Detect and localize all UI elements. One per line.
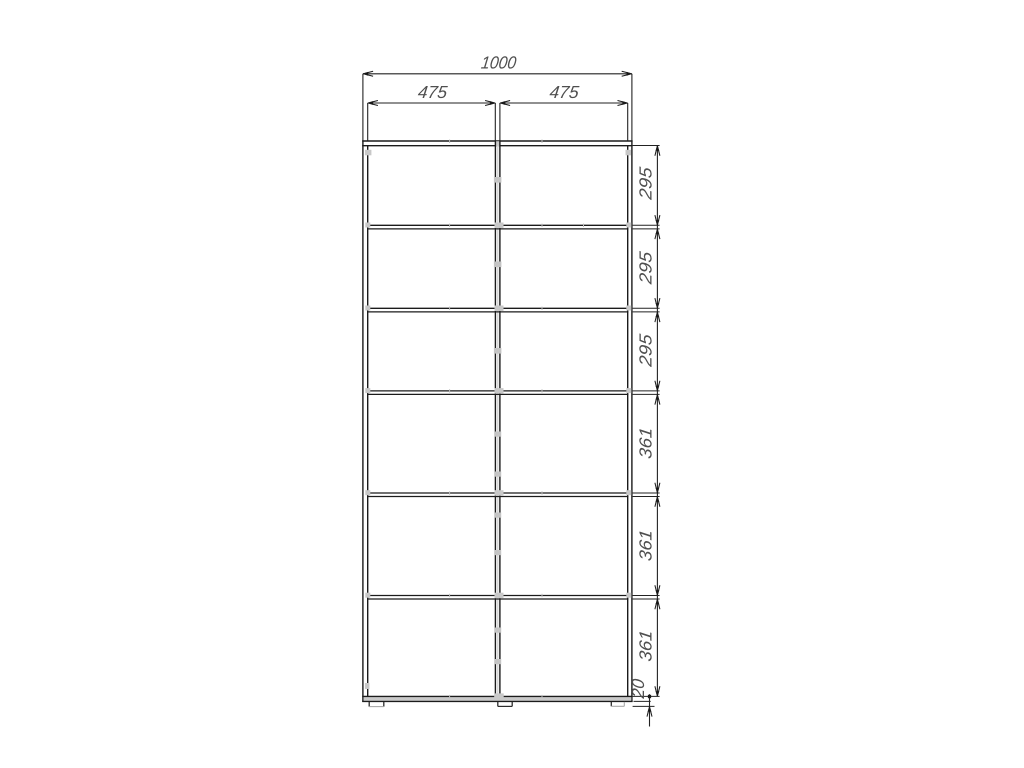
svg-text:20: 20 — [628, 678, 648, 701]
svg-text:361: 361 — [635, 529, 655, 562]
svg-text:475: 475 — [417, 82, 449, 102]
svg-text:295: 295 — [635, 166, 655, 202]
svg-text:361: 361 — [635, 426, 655, 459]
svg-text:295: 295 — [635, 250, 655, 286]
svg-text:1000: 1000 — [480, 52, 518, 72]
svg-text:361: 361 — [635, 629, 655, 662]
svg-text:475: 475 — [549, 82, 581, 102]
svg-text:295: 295 — [635, 333, 655, 369]
